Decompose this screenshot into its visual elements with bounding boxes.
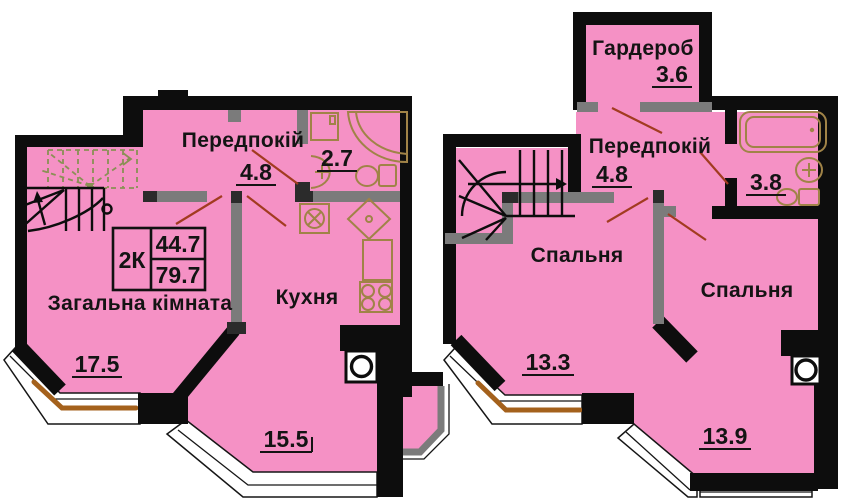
floor1-kitchen-label: Кухня (276, 286, 339, 309)
floor2-bedroom1-area: 13.3 (526, 349, 571, 375)
floor2-bath-area: 3.8 (750, 169, 782, 195)
floor2-bedroom2-area: 13.9 (703, 423, 748, 449)
floor1-bath-area: 2.7 (321, 145, 353, 171)
floor1-kitchen-area: 15.5 (264, 426, 309, 452)
floor1-hallway-area: 4.8 (240, 159, 272, 185)
duplex-floorplan-svg: 2К 44.7 79.7 Передпокій 4.8 2.7 Загальна… (0, 0, 857, 500)
stamp-living-area: 44.7 (156, 231, 201, 257)
stamp-total-area: 79.7 (156, 262, 201, 288)
floor2-hallway-label: Передпокій (589, 135, 711, 158)
floor1-living-area: 17.5 (75, 351, 120, 377)
floorplan-image: 2К 44.7 79.7 Передпокій 4.8 2.7 Загальна… (0, 0, 857, 500)
stamp-type-label: 2К (119, 247, 147, 273)
floor1-living-label: Загальна кімната (48, 292, 233, 315)
floor2-plan: Гардероб 3.6 Передпокій 4.8 3.8 Спальня … (443, 12, 838, 497)
floor2-bedroom1-label: Спальня (531, 244, 624, 267)
floor2-wardrobe-label: Гардероб (592, 37, 694, 60)
floor1-plan: 2К 44.7 79.7 Передпокій 4.8 2.7 Загальна… (4, 90, 449, 497)
floor2-bedroom2-label: Спальня (701, 279, 794, 302)
floor2-wardrobe-area: 3.6 (656, 61, 688, 87)
floor1-hallway-label: Передпокій (182, 129, 304, 152)
floor2-hallway-area: 4.8 (596, 161, 628, 187)
